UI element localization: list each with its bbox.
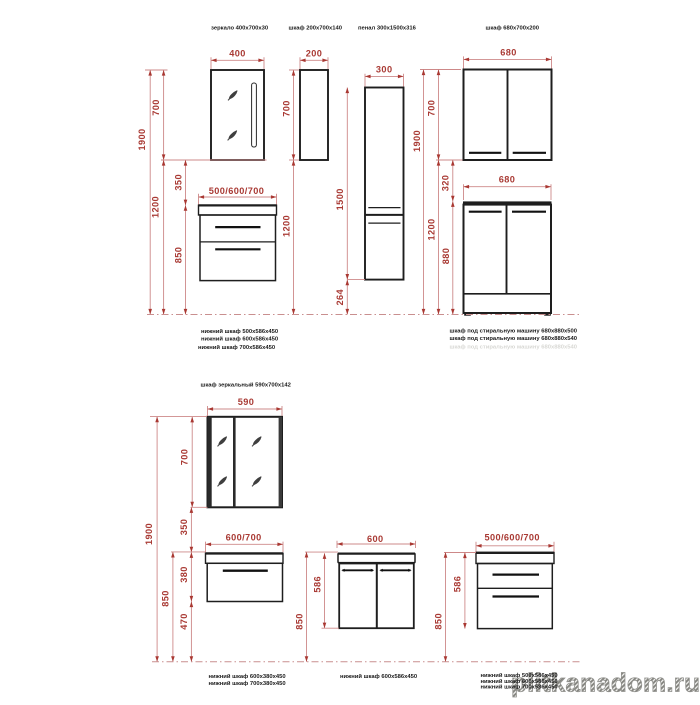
svg-text:700: 700 (282, 100, 292, 117)
svg-text:зеркало 400х700х30: зеркало 400х700х30 (211, 26, 269, 32)
svg-text:шкаф 200х700х140: шкаф 200х700х140 (289, 25, 343, 32)
svg-text:680: 680 (500, 47, 517, 57)
svg-text:нижний шкаф 700х380х450: нижний шкаф 700х380х450 (209, 680, 287, 687)
svg-text:700: 700 (151, 99, 161, 116)
svg-text:нижний шкаф 600х586х450: нижний шкаф 600х586х450 (340, 673, 418, 680)
svg-text:шкаф под стиральную машину 680: шкаф под стиральную машину 680х880х540 (450, 344, 578, 351)
svg-text:700: 700 (180, 449, 190, 466)
svg-text:700: 700 (426, 100, 436, 117)
svg-text:1500: 1500 (335, 188, 345, 210)
svg-text:350: 350 (179, 519, 189, 536)
svg-text:шкаф под стиральную машину 680: шкаф под стиральную машину 680х880х540 (450, 335, 578, 342)
svg-text:пенал 300х1500х316: пенал 300х1500х316 (358, 26, 417, 32)
svg-text:470: 470 (179, 613, 189, 630)
svg-text:264: 264 (335, 288, 345, 305)
svg-text:1900: 1900 (137, 128, 147, 150)
svg-text:шкаф зеркальный 590х700х142: шкаф зеркальный 590х700х142 (201, 382, 292, 389)
svg-text:нижний шкаф 500х586х450: нижний шкаф 500х586х450 (201, 328, 279, 335)
svg-text:320: 320 (440, 175, 450, 192)
svg-text:600/700: 600/700 (226, 532, 262, 542)
svg-text:1900: 1900 (412, 130, 422, 152)
svg-text:500/600/700: 500/600/700 (209, 186, 265, 196)
svg-text:850: 850 (161, 590, 171, 607)
svg-text:1200: 1200 (281, 215, 291, 237)
svg-text:нижний шкаф 700х586х450: нижний шкаф 700х586х450 (198, 344, 276, 351)
svg-text:нижний шкаф 600х586х450: нижний шкаф 600х586х450 (201, 336, 279, 343)
svg-text:1200: 1200 (151, 196, 161, 218)
svg-text:нижний шкаф 700х586х450: нижний шкаф 700х586х450 (481, 684, 559, 691)
svg-text:1200: 1200 (427, 218, 437, 240)
svg-text:590: 590 (238, 397, 255, 407)
svg-text:380: 380 (179, 566, 189, 583)
svg-text:500/600/700: 500/600/700 (484, 533, 540, 543)
svg-text:шкаф 680х700х200: шкаф 680х700х200 (486, 25, 540, 32)
svg-text:нижний шкаф 600х380х450: нижний шкаф 600х380х450 (209, 673, 287, 680)
svg-text:680: 680 (499, 175, 516, 185)
svg-text:200: 200 (306, 48, 323, 58)
svg-text:300: 300 (376, 65, 393, 75)
svg-text:350: 350 (173, 174, 183, 191)
svg-text:880: 880 (441, 248, 451, 265)
svg-text:586: 586 (452, 576, 462, 593)
svg-text:850: 850 (433, 613, 443, 630)
svg-text:586: 586 (312, 576, 322, 593)
svg-text:1900: 1900 (144, 523, 154, 545)
svg-text:850: 850 (173, 247, 183, 264)
svg-text:400: 400 (229, 48, 246, 58)
svg-text:шкаф под стиральную машину 680: шкаф под стиральную машину 680х880х500 (450, 328, 578, 335)
svg-text:600: 600 (367, 534, 384, 544)
svg-text:850: 850 (294, 613, 304, 630)
